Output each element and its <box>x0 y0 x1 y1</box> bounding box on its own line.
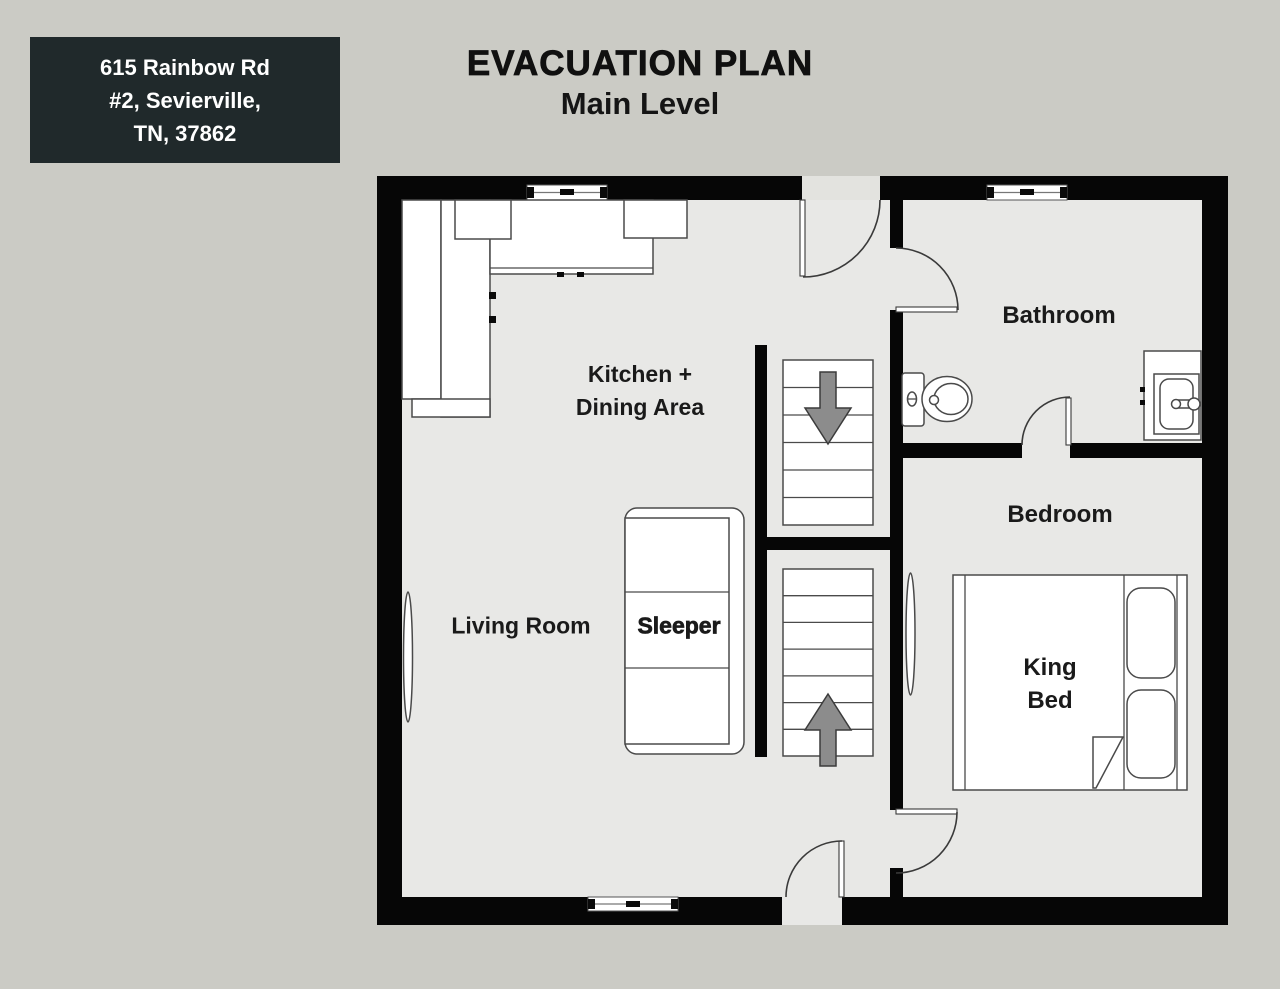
floor-area <box>377 176 1228 925</box>
bathroom-window-icon <box>987 185 1067 200</box>
kitchen-label: Kitchen + Dining Area <box>576 358 704 424</box>
bathroom-label: Bathroom <box>1002 302 1115 330</box>
living-room-label: Living Room <box>451 613 590 640</box>
bedroom-label: Bedroom <box>1007 501 1112 529</box>
kitchen-label-line1: Kitchen + <box>576 358 704 391</box>
evacuation-plan-page: 615 Rainbow Rd #2, Sevierville, TN, 3786… <box>0 0 1280 989</box>
kitchen-label-line2: Dining Area <box>576 391 704 424</box>
toilet-icon <box>902 373 972 426</box>
kitchen-window-icon <box>527 185 607 200</box>
sleeper-label: Sleeper <box>637 613 720 640</box>
king-bed-label-line1: King <box>1023 651 1076 684</box>
pillow-icon <box>1127 588 1175 678</box>
sink-icon <box>1140 351 1201 440</box>
bedroom-wall-lens-icon <box>906 573 915 695</box>
entry-threshold <box>802 176 880 200</box>
pillow-icon <box>1127 690 1175 778</box>
king-bed-label: King Bed <box>1023 651 1076 717</box>
floor-plan <box>0 0 1280 989</box>
king-bed-label-line2: Bed <box>1023 684 1076 717</box>
living-room-wall-lens-icon <box>404 592 413 722</box>
living-room-window-icon <box>588 897 678 911</box>
